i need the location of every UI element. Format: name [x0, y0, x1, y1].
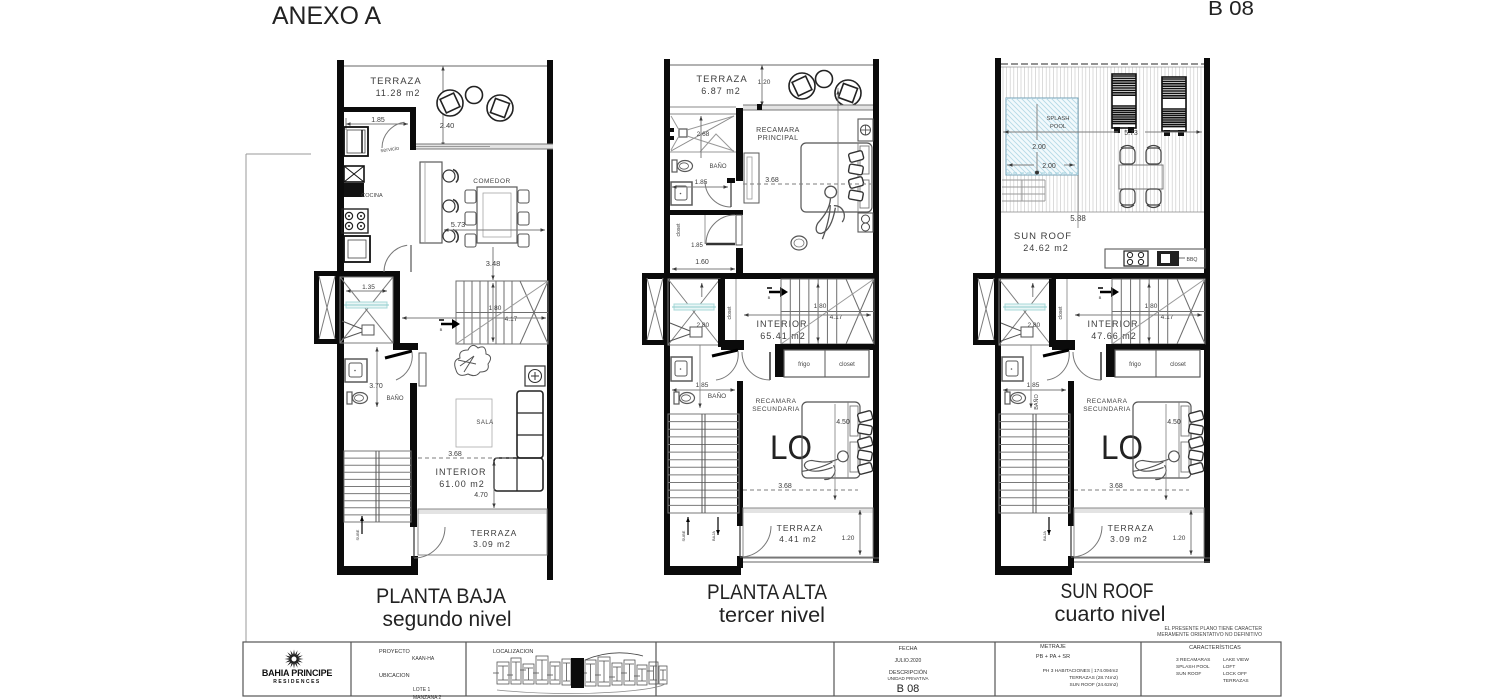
svg-text:RECAMARA: RECAMARA [756, 398, 797, 405]
svg-text:CARACTERÍSTICAS: CARACTERÍSTICAS [1189, 644, 1241, 651]
svg-text:BBQ: BBQ [1187, 257, 1198, 263]
svg-text:24.62 m2: 24.62 m2 [1023, 243, 1069, 253]
svg-text:BAJA: BAJA [1042, 531, 1047, 541]
svg-text:LO: LO [770, 429, 812, 467]
svg-text:RECAMARA: RECAMARA [756, 127, 800, 134]
svg-text:1.80: 1.80 [489, 305, 502, 312]
svg-text:2.80: 2.80 [697, 322, 710, 329]
svg-text:FECHA: FECHA [899, 646, 918, 652]
svg-text:COCINA: COCINA [361, 193, 383, 199]
svg-text:BAÑO: BAÑO [386, 395, 403, 402]
svg-text:closet: closet [1170, 362, 1186, 368]
svg-text:1.20: 1.20 [842, 535, 855, 542]
svg-text:LO: LO [1101, 429, 1143, 467]
svg-text:MANZANA 2: MANZANA 2 [413, 695, 442, 700]
svg-text:SUN ROOF: SUN ROOF [1014, 231, 1072, 242]
svg-text:3 RECAMARAS: 3 RECAMARAS [1176, 657, 1210, 663]
svg-text:B 08: B 08 [1208, 0, 1254, 20]
svg-text:1.80: 1.80 [814, 303, 827, 310]
svg-text:LAKE VIEW: LAKE VIEW [1223, 657, 1249, 663]
svg-text:4.50: 4.50 [1167, 419, 1181, 426]
svg-text:4.17: 4.17 [505, 316, 518, 323]
svg-text:SPLASH POOL: SPLASH POOL [1176, 664, 1210, 670]
svg-text:LOCALIZACION: LOCALIZACION [493, 649, 533, 655]
svg-text:POOL: POOL [1050, 124, 1067, 130]
svg-text:BAÑO: BAÑO [709, 163, 726, 170]
svg-text:closet: closet [727, 306, 733, 320]
svg-text:TERRAZA: TERRAZA [370, 76, 421, 87]
svg-text:LOCK OFF: LOCK OFF [1223, 671, 1247, 677]
svg-text:MERAMENTE ORIENTATIVO NO DEFIN: MERAMENTE ORIENTATIVO NO DEFINITIVO [1157, 632, 1262, 638]
svg-text:SUBE: SUBE [681, 530, 686, 541]
svg-text:2.40: 2.40 [440, 121, 455, 130]
svg-text:INTERIOR: INTERIOR [435, 467, 486, 477]
svg-text:5.73: 5.73 [1124, 130, 1138, 137]
svg-text:4.50: 4.50 [836, 419, 850, 426]
svg-text:1.85: 1.85 [691, 243, 703, 249]
svg-text:3.68: 3.68 [765, 177, 779, 184]
svg-text:PLANTA ALTA: PLANTA ALTA [707, 580, 828, 604]
svg-text:TERRAZA: TERRAZA [777, 523, 824, 533]
svg-text:1.60: 1.60 [695, 259, 709, 266]
svg-text:BAHIA PRINCIPE: BAHIA PRINCIPE [262, 668, 333, 678]
svg-text:TERRAZA: TERRAZA [696, 74, 747, 85]
svg-text:closet: closet [1058, 306, 1064, 320]
svg-text:SECUNDARIA: SECUNDARIA [752, 406, 800, 413]
svg-text:B: B [768, 295, 771, 300]
svg-text:METRAJE: METRAJE [1040, 644, 1066, 650]
svg-text:cuarto nivel: cuarto nivel [1055, 602, 1166, 626]
svg-text:1.80: 1.80 [1145, 303, 1158, 310]
svg-text:SUN ROOF (24.62m2): SUN ROOF (24.62m2) [1069, 682, 1118, 688]
svg-text:PLANTA BAJA: PLANTA BAJA [376, 584, 507, 608]
svg-text:COMEDOR: COMEDOR [473, 178, 510, 185]
svg-text:47.66 m2: 47.66 m2 [1091, 331, 1137, 341]
svg-text:2.00: 2.00 [1032, 144, 1046, 151]
svg-text:BAÑO: BAÑO [1033, 393, 1040, 409]
svg-text:BAÑO: BAÑO [708, 391, 726, 400]
svg-text:UBICACION: UBICACION [379, 673, 410, 679]
svg-text:LOFT: LOFT [1223, 664, 1235, 670]
svg-text:2.00: 2.00 [1042, 163, 1056, 170]
svg-text:61.00 m2: 61.00 m2 [439, 479, 485, 489]
svg-text:5.73: 5.73 [451, 220, 466, 229]
svg-text:1.20: 1.20 [758, 79, 771, 86]
svg-text:1.85: 1.85 [1027, 382, 1040, 389]
svg-text:TERRAZA: TERRAZA [471, 528, 518, 538]
svg-text:3.70: 3.70 [369, 383, 383, 390]
svg-text:tercer nivel: tercer nivel [719, 603, 825, 627]
svg-text:PH 3 HABITACIONES | 174.094m2: PH 3 HABITACIONES | 174.094m2 [1043, 668, 1119, 674]
svg-text:frigo: frigo [1129, 362, 1141, 368]
svg-text:SUN ROOF: SUN ROOF [1176, 671, 1201, 677]
svg-text:SECUNDARIA: SECUNDARIA [1083, 406, 1131, 413]
svg-text:SUBE: SUBE [355, 529, 360, 540]
svg-text:DESCRIPCIÓN: DESCRIPCIÓN [889, 669, 927, 676]
svg-text:B: B [440, 327, 443, 332]
svg-text:ANEXO A: ANEXO A [272, 2, 381, 30]
svg-text:RESIDENCES: RESIDENCES [273, 679, 321, 685]
svg-text:2.80: 2.80 [1028, 322, 1041, 329]
svg-text:BAJA: BAJA [711, 531, 716, 541]
svg-text:closet: closet [839, 362, 855, 368]
svg-text:1.20: 1.20 [1173, 535, 1186, 542]
svg-text:TERRAZA: TERRAZA [1108, 523, 1155, 533]
svg-text:segundo nivel: segundo nivel [383, 607, 512, 631]
svg-text:3.68: 3.68 [1109, 483, 1123, 490]
svg-text:PB + PA + SR: PB + PA + SR [1036, 654, 1070, 660]
svg-text:6.87 m2: 6.87 m2 [701, 86, 741, 96]
svg-text:3.09 m2: 3.09 m2 [473, 539, 511, 549]
svg-text:3.48: 3.48 [486, 259, 501, 268]
svg-text:1.35: 1.35 [362, 284, 375, 291]
svg-text:RECAMARA: RECAMARA [1087, 398, 1128, 405]
svg-text:TERRAZAS: TERRAZAS [1223, 678, 1249, 684]
svg-text:closet: closet [676, 223, 682, 237]
svg-text:PRINCIPAL: PRINCIPAL [758, 135, 799, 142]
svg-text:11.28 m2: 11.28 m2 [376, 88, 421, 98]
svg-text:65.41 m2: 65.41 m2 [760, 331, 806, 341]
svg-text:2.68: 2.68 [697, 131, 710, 138]
svg-text:KAAN-HA: KAAN-HA [412, 656, 435, 662]
svg-text:SPLASH: SPLASH [1047, 116, 1070, 122]
svg-text:SALA: SALA [476, 420, 493, 426]
svg-text:LOTE 1: LOTE 1 [413, 687, 430, 693]
svg-text:4.70: 4.70 [474, 492, 488, 499]
svg-text:SUN ROOF: SUN ROOF [1061, 579, 1154, 603]
svg-text:3.09 m2: 3.09 m2 [1110, 534, 1148, 544]
svg-text:3.68: 3.68 [778, 483, 792, 490]
svg-text:frigo: frigo [798, 362, 810, 368]
svg-text:3.68: 3.68 [448, 451, 462, 458]
svg-text:1.85: 1.85 [371, 117, 385, 124]
svg-text:4.41 m2: 4.41 m2 [779, 534, 817, 544]
svg-text:TERRAZAS (28.74m2): TERRAZAS (28.74m2) [1069, 675, 1118, 681]
svg-text:B 08: B 08 [897, 683, 920, 695]
svg-text:JULIO.2020: JULIO.2020 [895, 658, 922, 664]
svg-text:1.85: 1.85 [696, 382, 709, 389]
svg-text:PROYECTO: PROYECTO [379, 649, 410, 655]
svg-text:B: B [1099, 295, 1102, 300]
svg-text:UNIDAD PRIVATIVA: UNIDAD PRIVATIVA [887, 676, 928, 681]
